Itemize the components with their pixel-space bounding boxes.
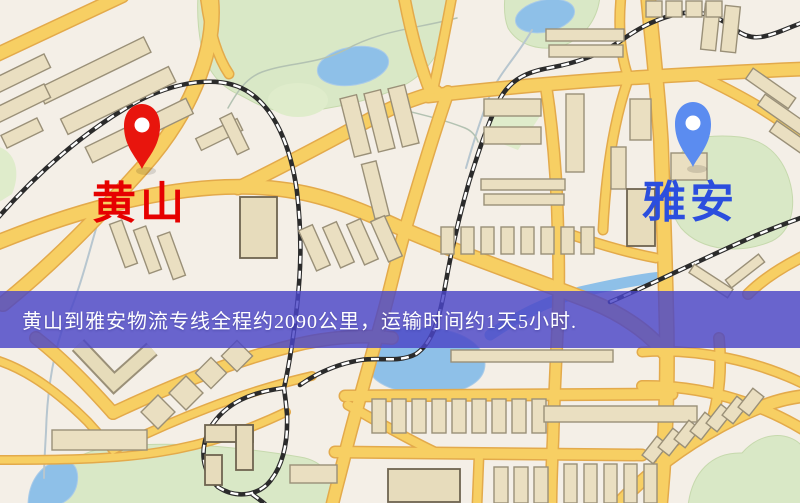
map-screenshot: 黄山 雅安 黄山到雅安物流专线全程约2090公里，运输时间约1天5小时. xyxy=(0,0,800,503)
route-info-text: 黄山到雅安物流专线全程约2090公里，运输时间约1天5小时. xyxy=(22,305,577,334)
route-info-banner: 黄山到雅安物流专线全程约2090公里，运输时间约1天5小时. xyxy=(0,291,800,348)
origin-label: 黄山 xyxy=(92,178,188,229)
destination-label: 雅安 xyxy=(642,177,738,228)
map-canvas[interactable]: 黄山 雅安 xyxy=(0,0,800,503)
